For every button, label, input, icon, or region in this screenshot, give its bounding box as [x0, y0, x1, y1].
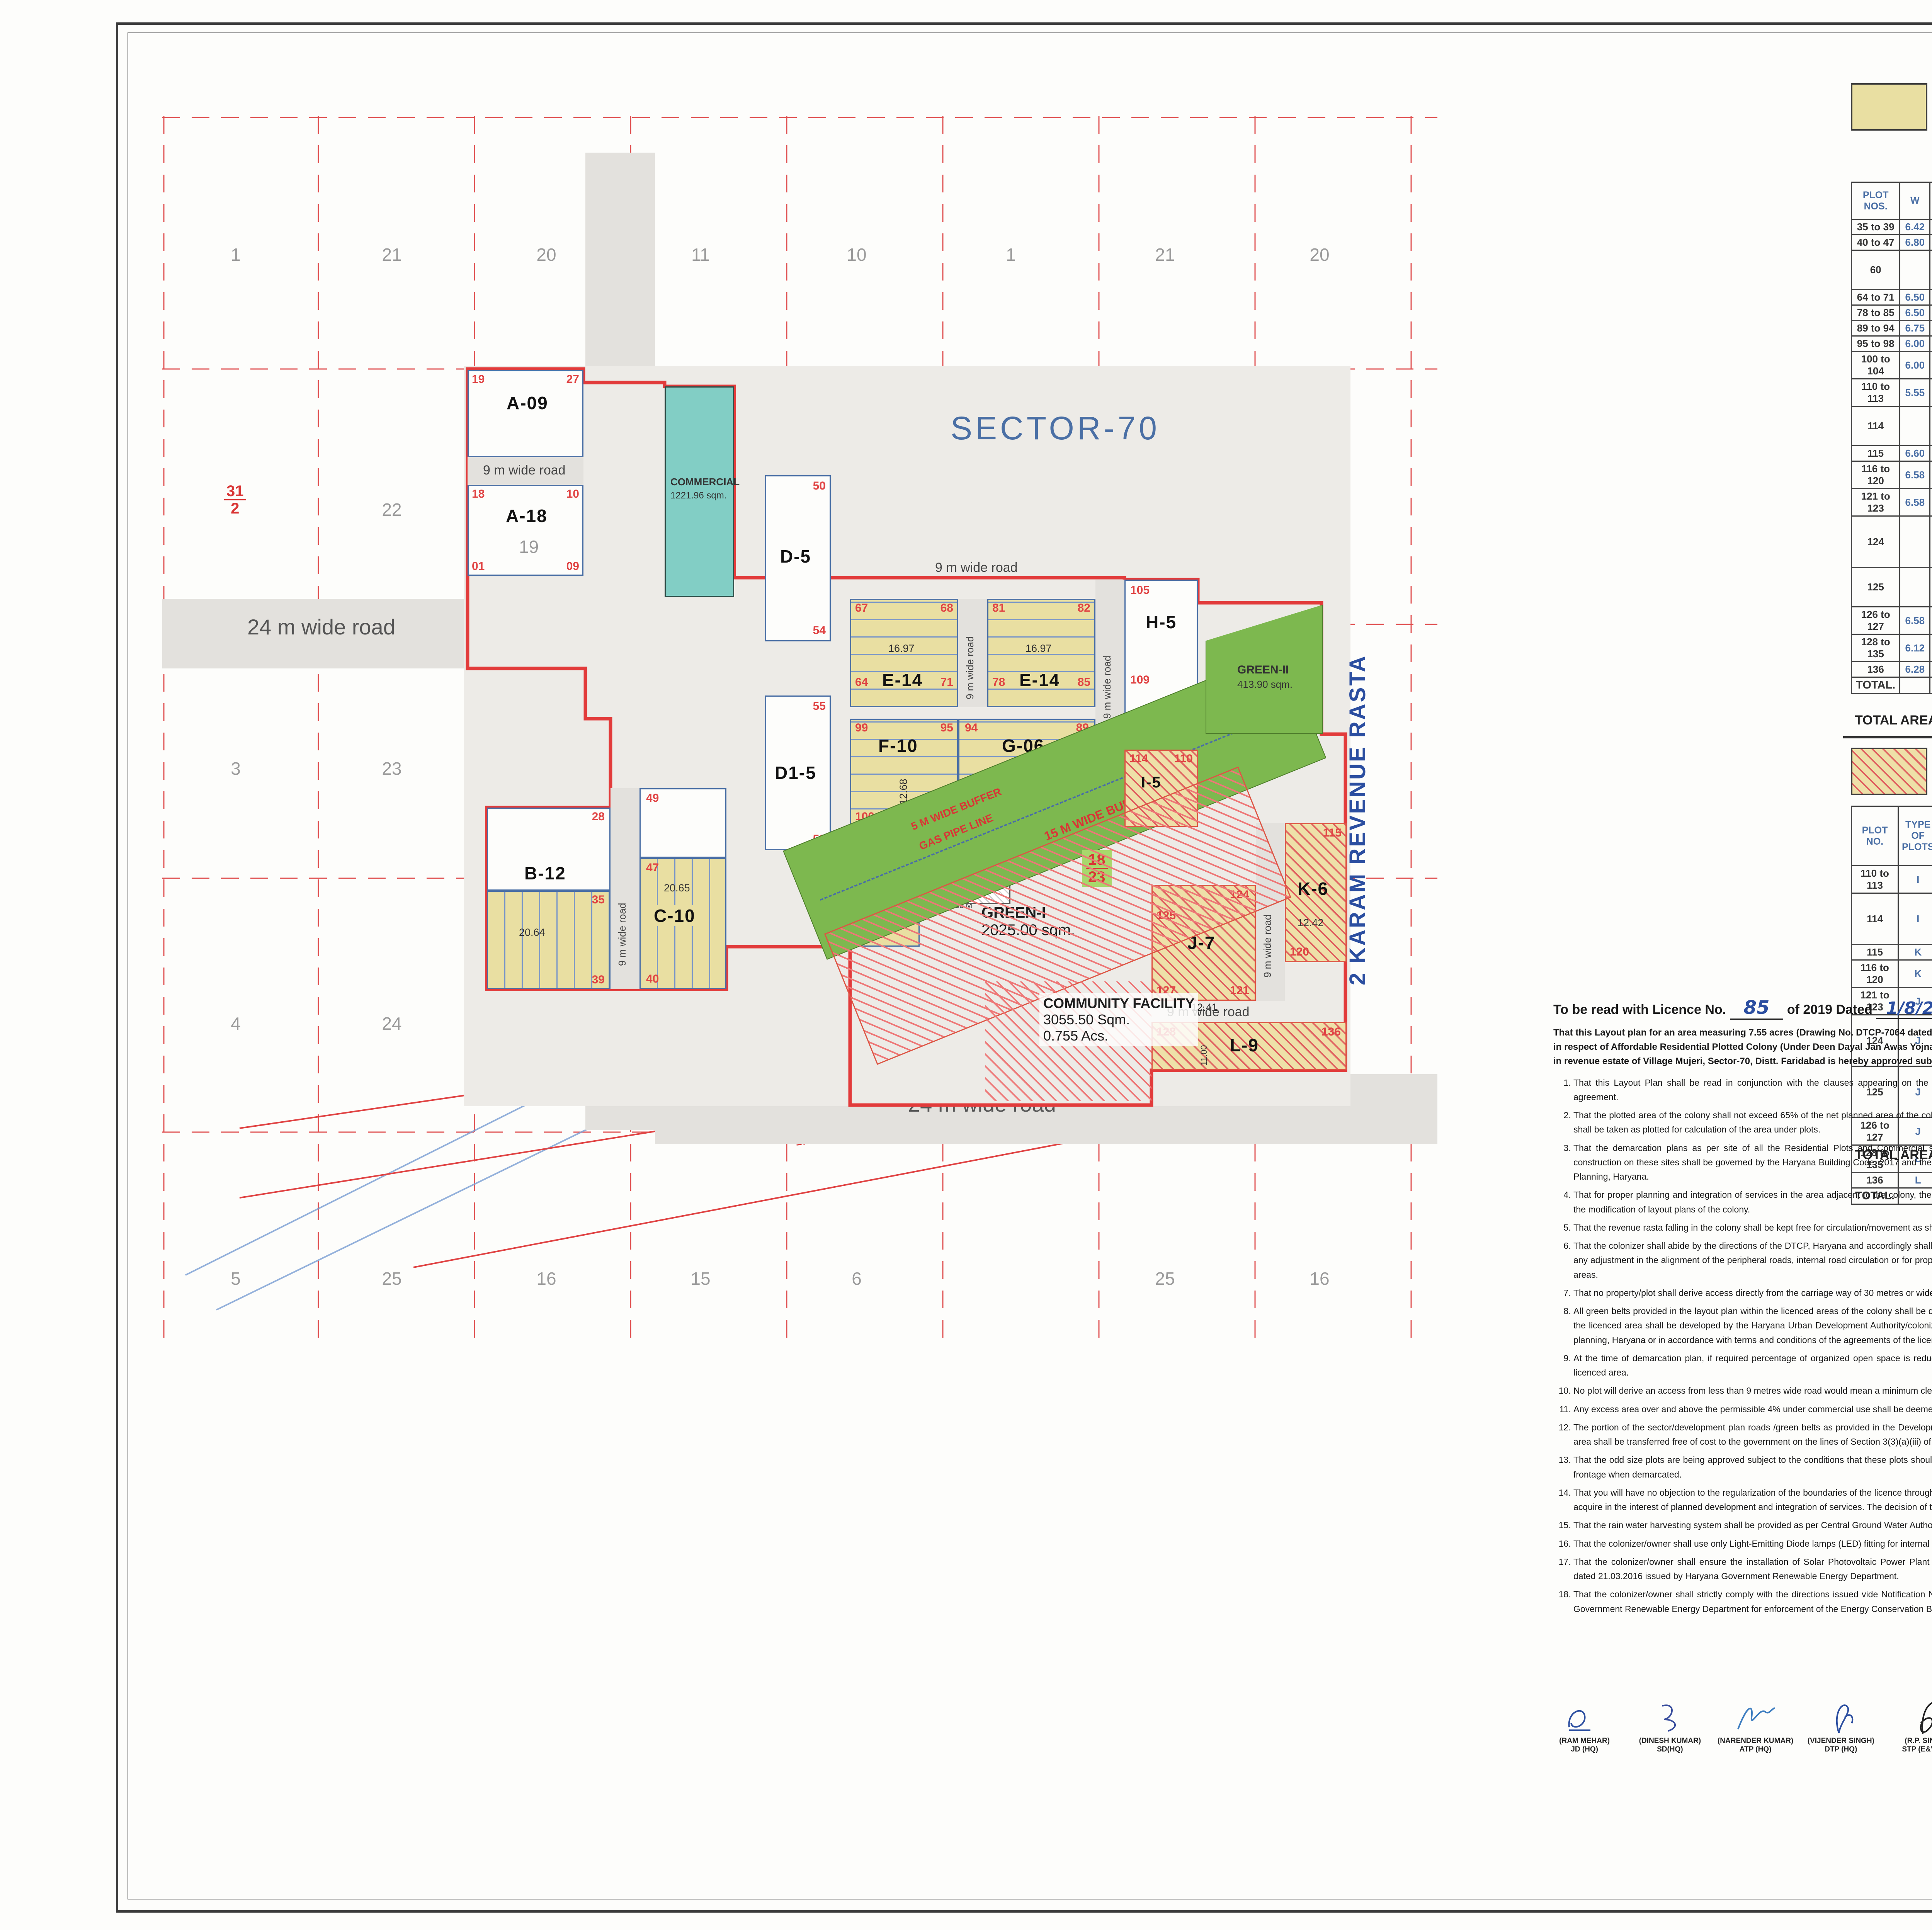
- condition-item: All green belts provided in the layout p…: [1573, 1304, 1932, 1347]
- table-cell: 6.80: [1900, 235, 1930, 250]
- col-header: D: [1930, 182, 1932, 219]
- signature-squiggle: [1903, 1700, 1932, 1735]
- dimension: 20.65: [664, 882, 690, 894]
- table-cell: 124: [1852, 516, 1900, 568]
- plot-number: 09: [566, 560, 579, 573]
- plot-number: 18: [472, 488, 485, 501]
- table-cell: [1900, 406, 1930, 446]
- table-cell: 16.97: [1930, 305, 1932, 321]
- table-row: 6014.00 x 6.70 + 13.19 /21139.23: [1852, 250, 1932, 290]
- table-row: TOTAL.727063.20: [1852, 677, 1932, 694]
- table-cell: 6.58: [1900, 489, 1930, 516]
- plot-number: 67: [855, 602, 868, 615]
- road-9m-v2-label: 9 m wide road: [1101, 656, 1113, 719]
- rasta-label: 2 KARAM REVENUE RASTA: [1345, 655, 1371, 985]
- table-cell: 12.68: [1930, 336, 1932, 352]
- block-E-14-a: E-14 67 68 64 71 16.97: [850, 599, 958, 707]
- table-row: 35 to 396.4220.64132.515662.54: [1852, 219, 1932, 235]
- table-cell: 100 to 104: [1852, 352, 1900, 379]
- table-cell: I: [1898, 893, 1932, 945]
- table-cell: 12.41: [1930, 489, 1932, 516]
- plot-number: 121: [1230, 984, 1249, 997]
- table-cell: 11.00: [1930, 662, 1932, 677]
- table-cell: 6.28: [1900, 662, 1930, 677]
- table-cell: 6.58: [1900, 461, 1930, 489]
- signature-squiggle: [1647, 1700, 1693, 1735]
- plot-number: 54: [813, 624, 826, 637]
- plot-number: 39: [592, 973, 605, 986]
- signatory: (DINESH KUMAR)SD(HQ): [1627, 1700, 1713, 1754]
- col-header: PLOT NO.: [1852, 806, 1898, 866]
- table-cell: 115: [1852, 945, 1898, 960]
- table-cell: 116 to 120: [1852, 960, 1898, 988]
- table-row: 1148.55 x 11.97 - 3.0 x 1.83/2199.59: [1852, 406, 1932, 446]
- mortgage-swatch: [1851, 748, 1927, 795]
- plot-number: 01: [472, 560, 485, 573]
- plot-number: 95: [940, 721, 953, 735]
- table-row: 110 to 113I5.5511.9766.434265.73: [1852, 866, 1932, 893]
- plot-number: 55: [813, 700, 826, 713]
- licence-conditions: That this Layout Plan shall be read in c…: [1553, 1076, 1932, 1616]
- condition-item: That the rain water harvesting system sh…: [1573, 1518, 1932, 1532]
- plot-number: 136: [1321, 1025, 1341, 1039]
- block-label: B-12: [521, 863, 569, 884]
- table-cell: 136: [1852, 662, 1900, 677]
- signature-squiggle: [1818, 1700, 1864, 1735]
- commercial-area: 1221.96 sqm.: [670, 490, 726, 501]
- block-E-14-b: E-14 81 82 78 85 16.97: [987, 599, 1095, 707]
- table-cell: 12.42: [1930, 446, 1932, 461]
- divider: [1843, 736, 1932, 738]
- table-cell: 115: [1852, 446, 1900, 461]
- table-cell: 6.50: [1900, 290, 1930, 305]
- sector-70-label: SECTOR-70: [951, 410, 1160, 447]
- table-cell: [1930, 677, 1932, 694]
- road-9m-a-label: 9 m wide road: [483, 463, 566, 478]
- table-cell: 6.00: [1900, 352, 1930, 379]
- table-row: 115K6.6012.4281.97181.97: [1852, 945, 1932, 960]
- dimension: 16.97: [1026, 643, 1052, 655]
- condition-item: No plot will derive an access from less …: [1573, 1384, 1932, 1398]
- plot-number: 78: [992, 676, 1005, 689]
- table-cell: 125: [1852, 568, 1900, 607]
- freezed-plots-table: PLOT NOS. W D AREA OF PLOTS IN SQM. NO O…: [1851, 182, 1932, 694]
- condition-item: That for proper planning and integration…: [1573, 1188, 1932, 1217]
- plot-number: 99: [855, 721, 868, 735]
- plot-number: 19: [472, 373, 485, 386]
- plot-number: 68: [940, 602, 953, 615]
- condition-item: Any excess area over and above the permi…: [1573, 1402, 1932, 1416]
- block-label: E-14: [1019, 670, 1060, 690]
- licence-block: LC-4009 To be read with Licence No. 85 o…: [1553, 997, 1932, 1620]
- col-header: PLOT NOS.: [1852, 182, 1900, 219]
- table-row: 95 to 986.0012.6876.084304.32: [1852, 336, 1932, 352]
- plot-number: 110: [1174, 752, 1193, 765]
- road-9m-jk-label: 9 m wide road: [1262, 915, 1274, 978]
- licence-paragraph: That this Layout plan for an area measur…: [1553, 1025, 1932, 1069]
- table-cell: 5.55: [1900, 379, 1930, 406]
- table-cell: [1930, 516, 1932, 568]
- condition-item: At the time of demarcation plan, if requ…: [1573, 1351, 1932, 1380]
- plot-number: 115: [1323, 826, 1342, 840]
- table-cell: 6.12: [1900, 634, 1930, 662]
- table-cell: 64 to 71: [1852, 290, 1900, 305]
- plot-number: 10: [566, 488, 579, 501]
- table-cell: 128 to 135: [1852, 634, 1900, 662]
- table-cell: 6.50: [1900, 305, 1930, 321]
- plot-number: 47: [646, 861, 659, 874]
- block-label: E-14: [882, 670, 923, 690]
- signatory: (R.P. SINGH)STP (E&V) HR: [1884, 1700, 1932, 1754]
- block-label: D-5: [778, 546, 813, 567]
- block-A-09: A-09 19 27: [468, 370, 583, 457]
- plot-number: 50: [813, 480, 826, 493]
- plot-number: 40: [646, 973, 659, 986]
- khasra-num: 19: [519, 536, 539, 557]
- dimension: 16.97: [888, 643, 915, 655]
- table-cell: [1930, 568, 1932, 607]
- table-row: 114I8.55 x 11.97 - 3.0 x 1.83/2199.59: [1852, 893, 1932, 945]
- table-cell: 20.65: [1930, 235, 1932, 250]
- table-cell: I: [1898, 866, 1932, 893]
- table-cell: 35 to 39: [1852, 219, 1900, 235]
- block-label: H-5: [1143, 612, 1179, 633]
- table-cell: 78 to 85: [1852, 305, 1900, 321]
- green-2-area: 413.90 sqm.: [1237, 679, 1293, 690]
- plot-number: 85: [1078, 676, 1090, 689]
- condition-item: That the colonizer shall abide by the di…: [1573, 1239, 1932, 1282]
- signatories-row: (RAM MEHAR)JD (HQ) (DINESH KUMAR)SD(HQ) …: [1542, 1700, 1932, 1754]
- block-label: A-18: [503, 505, 551, 526]
- table-cell: [1930, 250, 1932, 290]
- plot-number: 120: [1290, 945, 1309, 959]
- table-row: 116 to 120K6.5812.4281.725408.62: [1852, 960, 1932, 988]
- road-9m-bc-label: 9 m wide road: [616, 903, 628, 966]
- plot-number: 94: [965, 721, 978, 735]
- signature-squiggle: [1561, 1700, 1608, 1735]
- condition-item: That the revenue rasta falling in the co…: [1573, 1221, 1932, 1235]
- table-row: 126 to 1276.5812.4181.662163.32: [1852, 607, 1932, 634]
- block-label: C-10: [651, 905, 698, 926]
- plot-number: 81: [992, 602, 1005, 615]
- dimension: 12.42: [1298, 917, 1324, 929]
- table-cell: K: [1898, 960, 1932, 988]
- condition-item: That this Layout Plan shall be read in c…: [1573, 1076, 1932, 1105]
- table-cell: 114: [1852, 893, 1898, 945]
- table-cell: TOTAL.: [1852, 677, 1900, 694]
- block-label: A-09: [503, 393, 551, 413]
- table-row: 40 to 476.8020.65140.4281123.36: [1852, 235, 1932, 250]
- block-label: F-10: [878, 735, 918, 756]
- table-cell: 14.10: [1930, 321, 1932, 336]
- commercial-label: COMMERCIAL: [670, 476, 740, 488]
- dimension: 20.64: [519, 927, 545, 939]
- col-header: TYPE OF PLOTS: [1898, 806, 1932, 866]
- road-9m-label: 9 m wide road: [935, 560, 1018, 575]
- table-cell: [1930, 406, 1932, 446]
- plot-number: 71: [940, 676, 953, 689]
- block-B-12: 28 B-12: [487, 808, 611, 891]
- table-row: 121 to 1236.5812.4181.663244.97: [1852, 489, 1932, 516]
- green-2-label: GREEN-II: [1237, 663, 1289, 677]
- table-cell: [1900, 568, 1930, 607]
- table-cell: 40 to 47: [1852, 235, 1900, 250]
- block-label: K-6: [1298, 878, 1328, 899]
- table-cell: 6.42: [1900, 219, 1930, 235]
- condition-item: That the colonizer/owner shall strictly …: [1573, 1587, 1932, 1616]
- site-plan: 17.50 M WIDE BUFFER HT.LINE 220 K.V. 17.…: [162, 116, 1437, 1345]
- block-label: D1-5: [773, 762, 818, 783]
- table-row: 128 to 1356.1211.0067.328538.56: [1852, 634, 1932, 662]
- condition-item: That you will have no objection to the r…: [1573, 1486, 1932, 1515]
- block-label: I-5: [1141, 774, 1162, 791]
- table-cell: [1900, 250, 1930, 290]
- table-row: 64 to 716.5016.97110.318882.44: [1852, 290, 1932, 305]
- table-cell: [1900, 516, 1930, 568]
- community-label: COMMUNITY FACILITY 3055.50 Sqm. 0.755 Ac…: [1039, 993, 1198, 1046]
- table-cell: 20.64: [1930, 219, 1932, 235]
- plot-number: 114: [1129, 752, 1148, 765]
- block-label: L-9: [1230, 1035, 1259, 1056]
- condition-item: That the demarcation plans as per site o…: [1573, 1141, 1932, 1184]
- signatory: (RAM MEHAR)JD (HQ): [1542, 1700, 1627, 1754]
- plot-number: 64: [855, 676, 868, 689]
- table1-formula: TOTAL AREA = 7063.20 X 100 / 13819.05 = …: [1855, 713, 1932, 728]
- col-header: W: [1900, 182, 1930, 219]
- block-commercial: COMMERCIAL 1221.96 sqm.: [665, 386, 734, 597]
- table-cell: 12.41: [1930, 607, 1932, 634]
- table-row: 78 to 856.5016.97110.318882.44: [1852, 305, 1932, 321]
- table-cell: 114: [1852, 406, 1900, 446]
- table-cell: 11.00: [1930, 634, 1932, 662]
- table-cell: K: [1898, 945, 1932, 960]
- table-row: 12512.41 X 6.43 + 13.88/21126.02: [1852, 568, 1932, 607]
- dimension: 11.00: [1199, 1045, 1209, 1066]
- freeze-swatch: [1851, 83, 1927, 131]
- table-cell: 6.00: [1900, 336, 1930, 352]
- mortgage-legend: 15.32 % Area (13819.05 sqm. of Total Sal…: [1851, 748, 1932, 806]
- plot-number: 105: [1130, 584, 1150, 597]
- table-cell: 12.68: [1930, 352, 1932, 379]
- table-cell: 89 to 94: [1852, 321, 1900, 336]
- table-cell: 11.97: [1930, 379, 1932, 406]
- table-cell: 6.60: [1900, 446, 1930, 461]
- freeze-legend: Area Freezed 51.11 % (13819.05 sqm ofTot…: [1851, 83, 1932, 135]
- plot-number: 35: [592, 893, 605, 906]
- table-cell: 12.42: [1930, 461, 1932, 489]
- table-cell: 110 to 113: [1852, 379, 1900, 406]
- signatory: (VIJENDER SINGH)DTP (HQ): [1798, 1700, 1884, 1754]
- condition-item: That the colonizer/owner shall use only …: [1573, 1537, 1932, 1551]
- plot-number: 109: [1130, 673, 1150, 687]
- condition-item: That no property/plot shall derive acces…: [1573, 1286, 1932, 1300]
- signatory: (NARENDER KUMAR)ATP (HQ): [1713, 1700, 1798, 1754]
- khasra-fraction-31-2: 312: [224, 483, 246, 517]
- block-C-10: 47 40 C-10 20.65: [639, 858, 726, 989]
- table-cell: 6.75: [1900, 321, 1930, 336]
- table-cell: 126 to 127: [1852, 607, 1900, 634]
- signature-squiggle: [1732, 1700, 1779, 1735]
- table-row: 100 to 1046.0012.6876.085380.40: [1852, 352, 1932, 379]
- condition-item: The portion of the sector/development pl…: [1573, 1420, 1932, 1449]
- table-row: 1366.2811.0069.08169.08: [1852, 662, 1932, 677]
- road-9m-v1-label: 9 m wide road: [964, 636, 976, 699]
- table-row: 1156.6012.4281.97181.97: [1852, 446, 1932, 461]
- table-cell: 6.58: [1900, 607, 1930, 634]
- block-B-12-freezed: 35 39 20.64: [487, 891, 611, 989]
- table-cell: 116 to 120: [1852, 461, 1900, 489]
- table-cell: 121 to 123: [1852, 489, 1900, 516]
- plot-number: 28: [592, 810, 605, 823]
- block-K-6: K-6 115 120 12.42: [1285, 823, 1347, 962]
- table-cell: 16.97: [1930, 290, 1932, 305]
- table-row: 89 to 946.7514.1095.186571.05: [1852, 321, 1932, 336]
- table-row: 110 to 1135.5511.9766.434265.73: [1852, 379, 1932, 406]
- plot-number: 49: [646, 792, 659, 805]
- table-cell: 110 to 113: [1852, 866, 1898, 893]
- plot-number: 82: [1078, 602, 1090, 615]
- table-row: 12410.16 x 12.41 - 2.86 x 4.57/21119.55: [1852, 516, 1932, 568]
- block-C-10-top: 49: [639, 788, 726, 858]
- block-A-18: A-18 18 10 01 09 19: [468, 485, 583, 576]
- licence-heading: To be read with Licence No. 85 of 2019 D…: [1553, 997, 1932, 1019]
- condition-item: That the odd size plots are being approv…: [1573, 1453, 1932, 1482]
- drawing-sheet: 17.50 M WIDE BUFFER HT.LINE 220 K.V. 17.…: [0, 0, 1932, 1930]
- condition-item: That the plotted area of the colony shal…: [1573, 1108, 1932, 1137]
- condition-item: That the colonizer/owner shall ensure th…: [1573, 1555, 1932, 1584]
- table-cell: 60: [1852, 250, 1900, 290]
- block-D-5: D-5 50 54: [765, 475, 831, 641]
- plot-number: 27: [566, 373, 579, 386]
- table-cell: [1900, 677, 1930, 694]
- table-cell: 95 to 98: [1852, 336, 1900, 352]
- block-D1-5: D1-5 55 59: [765, 695, 831, 850]
- table-row: 116 to 1206.5812.4281.725408.62: [1852, 461, 1932, 489]
